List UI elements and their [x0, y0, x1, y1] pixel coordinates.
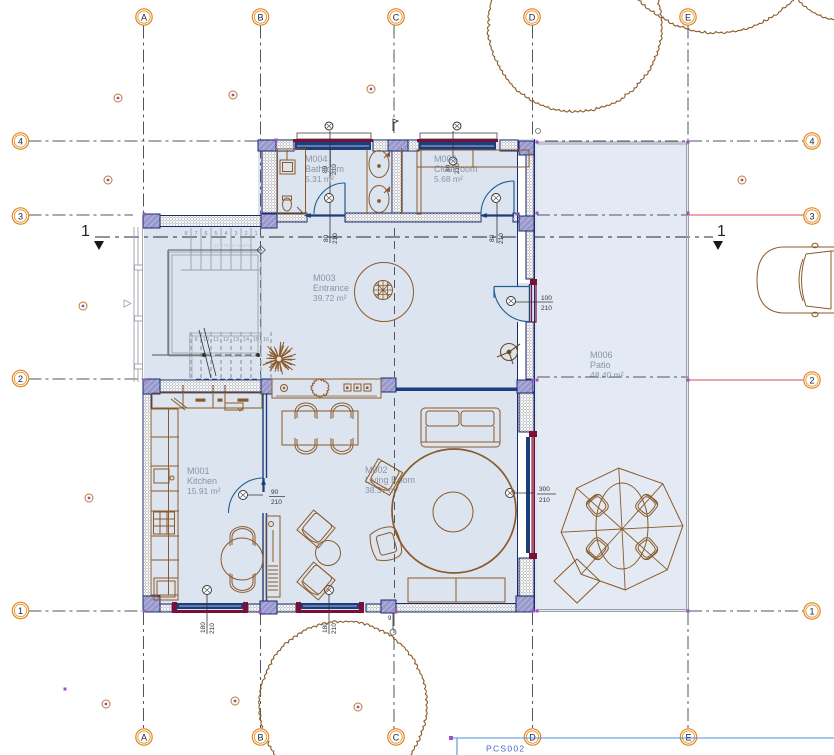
svg-text:7: 7: [194, 231, 197, 237]
svg-text:M002: M002: [365, 465, 388, 475]
svg-text:1: 1: [809, 606, 814, 616]
svg-text:M005: M005: [434, 154, 457, 164]
svg-text:15.91 m²: 15.91 m²: [187, 486, 221, 496]
svg-text:16: 16: [263, 337, 269, 343]
svg-text:B: B: [257, 732, 263, 742]
svg-text:4: 4: [18, 136, 23, 146]
svg-text:1: 1: [18, 606, 23, 616]
svg-text:PCS002: PCS002: [486, 744, 525, 754]
svg-text:M006: M006: [590, 350, 613, 360]
svg-text:300: 300: [539, 486, 550, 493]
svg-text:10: 10: [203, 337, 209, 343]
svg-text:2: 2: [809, 375, 814, 385]
svg-text:5.31 m²: 5.31 m²: [305, 174, 334, 184]
svg-text:80: 80: [323, 234, 330, 242]
svg-text:D: D: [529, 732, 536, 742]
svg-text:M003: M003: [313, 273, 336, 283]
svg-text:210: 210: [209, 623, 216, 634]
svg-text:5: 5: [214, 231, 217, 237]
svg-text:D: D: [529, 12, 536, 22]
svg-text:1: 1: [717, 223, 726, 240]
svg-text:C: C: [393, 12, 400, 22]
svg-text:15: 15: [253, 337, 259, 343]
svg-text:8: 8: [184, 231, 187, 237]
svg-text:90: 90: [271, 489, 279, 496]
svg-text:5.68 m²: 5.68 m²: [434, 174, 463, 184]
svg-text:3: 3: [234, 231, 237, 237]
svg-text:1: 1: [254, 231, 257, 237]
svg-text:Patio: Patio: [590, 360, 611, 370]
svg-text:4: 4: [224, 231, 227, 237]
svg-text:11: 11: [213, 337, 219, 343]
svg-text:18 STEPS 18x172: 18 STEPS 18x172: [214, 243, 252, 248]
svg-text:Cloakroom: Cloakroom: [434, 164, 478, 174]
svg-text:M004: M004: [305, 154, 328, 164]
svg-text:Kitchen: Kitchen: [187, 476, 217, 486]
svg-text:E: E: [685, 732, 691, 742]
svg-text:M001: M001: [187, 466, 210, 476]
svg-text:C: C: [393, 732, 400, 742]
svg-text:Bathroom: Bathroom: [305, 164, 344, 174]
svg-text:39.72 m²: 39.72 m²: [313, 293, 347, 303]
svg-text:80: 80: [489, 234, 496, 242]
svg-text:48.40 m²: 48.40 m²: [590, 370, 624, 380]
svg-text:Entrance: Entrance: [313, 283, 349, 293]
svg-text:210: 210: [539, 497, 550, 504]
svg-text:2: 2: [244, 231, 247, 237]
svg-text:B: B: [257, 12, 263, 22]
svg-text:14: 14: [243, 337, 249, 343]
svg-text:2: 2: [18, 374, 23, 384]
svg-text:180: 180: [200, 622, 207, 633]
svg-text:12: 12: [223, 337, 229, 343]
svg-text:3: 3: [18, 211, 23, 221]
svg-text:A: A: [141, 12, 147, 22]
svg-text:13: 13: [233, 337, 239, 343]
svg-text:9: 9: [194, 337, 197, 343]
svg-text:1: 1: [81, 223, 90, 240]
svg-text:210: 210: [331, 623, 338, 634]
svg-text:210: 210: [541, 305, 552, 312]
svg-text:4: 4: [809, 136, 814, 146]
svg-text:100: 100: [541, 295, 552, 302]
svg-text:210: 210: [332, 233, 339, 244]
svg-text:210: 210: [498, 233, 505, 244]
svg-text:E: E: [685, 12, 691, 22]
svg-text:6: 6: [204, 231, 207, 237]
svg-text:A: A: [141, 732, 147, 742]
svg-text:3: 3: [809, 211, 814, 221]
svg-text:210: 210: [271, 499, 282, 506]
